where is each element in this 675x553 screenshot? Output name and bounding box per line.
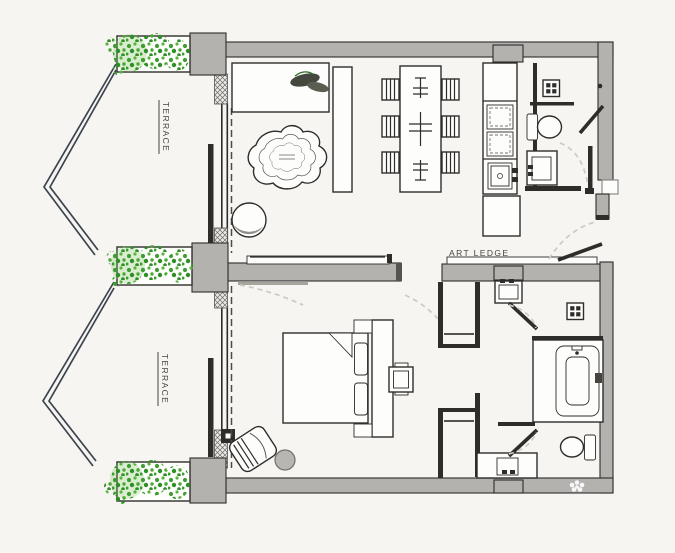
faucet [528, 165, 533, 169]
floor-plan-drawing: TERRACE TERRACE ART LEDGE [0, 0, 675, 553]
master-vanity-lower [477, 453, 537, 478]
refrigerator [483, 196, 520, 236]
bath-partition-lower [498, 422, 535, 426]
door-lock-block-center [226, 434, 231, 439]
faucet [502, 470, 507, 474]
dining-chair [442, 116, 459, 137]
terrace-label-lower-text: TERRACE [160, 354, 170, 404]
planter-lower [104, 458, 226, 504]
faucet [512, 168, 518, 173]
top-exterior-wall [222, 42, 613, 57]
shaft-grid-icon [543, 80, 560, 97]
sofa-return-console [333, 67, 352, 192]
nightstand [354, 424, 372, 437]
planter-column [190, 33, 226, 75]
planter-column [190, 458, 226, 503]
dining-chair [442, 152, 459, 173]
powder-toilet [527, 114, 562, 140]
middle-wall-shadow [238, 281, 308, 285]
art-ledge-wall [442, 264, 613, 281]
dining-chair [442, 79, 459, 100]
round-pouf [232, 203, 266, 237]
planter-upper [105, 33, 226, 76]
dining-chair [382, 79, 399, 100]
faucet [500, 279, 505, 283]
pillow [355, 383, 368, 415]
tub-faucet [572, 346, 582, 350]
closet-door-leaf [588, 146, 593, 192]
dining-table [400, 66, 441, 192]
powder-partition [530, 102, 574, 106]
art-ledge-shelf [447, 257, 597, 264]
oven [487, 132, 513, 156]
pillow [355, 343, 368, 375]
tub-control [595, 373, 602, 383]
ottoman [275, 450, 295, 470]
sliding-door-panel [208, 144, 214, 253]
master-vanity-upper [495, 279, 522, 303]
shaft-grid-icon [567, 303, 584, 320]
powder-south-wall [525, 186, 581, 191]
wall-mounted-tv [389, 363, 413, 395]
art-ledge-label: ART LEDGE [449, 248, 509, 258]
bathtub [533, 340, 603, 422]
bottom-exterior-wall [226, 478, 613, 493]
top-wall-niche [493, 45, 523, 62]
door-jamb-stub [475, 393, 480, 408]
door-hinge [598, 84, 603, 89]
nightstand [354, 320, 372, 333]
dishwasher [487, 105, 513, 129]
planter-middle [106, 243, 228, 292]
pocket-door-stop [387, 254, 392, 263]
dining-chair [382, 116, 399, 137]
bed [283, 320, 393, 437]
middle-wall-end-cap [396, 263, 402, 281]
planter-column [192, 243, 228, 292]
entry-pier-cap [596, 215, 609, 220]
powder-vanity [527, 151, 557, 185]
entry-jog-column [602, 180, 618, 194]
kitchen [483, 63, 520, 236]
dining-chair [382, 152, 399, 173]
terrace-label-upper-text: TERRACE [161, 102, 171, 152]
bottom-wall-niche [494, 480, 523, 493]
column-hatch [215, 74, 228, 104]
floor-plan-page: TERRACE TERRACE ART LEDGE [0, 0, 675, 553]
closet-door-stop [585, 188, 594, 194]
middle-partition-wall [228, 263, 401, 281]
sliding-door-panel [208, 358, 214, 457]
art-ledge-niche [494, 266, 523, 280]
